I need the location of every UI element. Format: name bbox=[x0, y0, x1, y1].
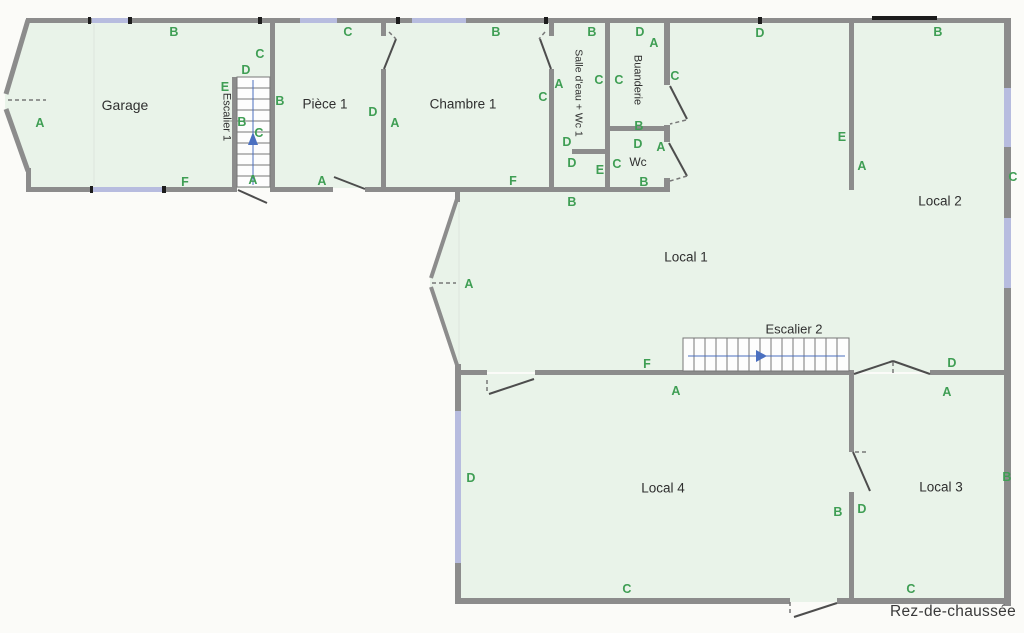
window-piece1-top bbox=[300, 18, 337, 23]
window-local2-right-2 bbox=[1004, 218, 1011, 288]
wall-label-13-B: B bbox=[491, 26, 500, 39]
wall-label-31-B: B bbox=[639, 176, 648, 189]
window-garage-top bbox=[92, 18, 128, 23]
wall-label-23-D: D bbox=[635, 26, 644, 39]
door-escalier1 bbox=[238, 190, 267, 203]
wall-label-15-C: C bbox=[538, 91, 547, 104]
floor-title: Rez-de-chaussée bbox=[890, 603, 1016, 621]
room-label-local-4: Local 4 bbox=[641, 481, 685, 495]
room-label-garage: Garage bbox=[102, 98, 149, 112]
wall-label-36-C: C bbox=[1008, 171, 1017, 184]
room-label-wc: Wc bbox=[629, 156, 646, 168]
door-exterior-bottom bbox=[794, 603, 837, 617]
wall-label-17-B: B bbox=[587, 26, 596, 39]
garage-door-bottom bbox=[92, 187, 164, 192]
wall-label-33-B: B bbox=[933, 26, 942, 39]
wall-label-19-C: C bbox=[594, 74, 603, 87]
wall-label-46-C: C bbox=[906, 583, 915, 596]
wall-label-40-A: A bbox=[671, 385, 680, 398]
floor-plan: BAFCDEBCABCDABACFBACDDEDACBCDACBDBEACBAF… bbox=[0, 0, 1024, 633]
wall-label-34-E: E bbox=[838, 131, 847, 144]
wall-label-22-E: E bbox=[596, 164, 605, 177]
room-label-escalier-2: Escalier 2 bbox=[765, 323, 822, 336]
room-label-local-2: Local 2 bbox=[918, 194, 962, 208]
wall-label-11-D: D bbox=[368, 106, 377, 119]
wall-label-38-A: A bbox=[464, 278, 473, 291]
wall-label-28-D: D bbox=[633, 138, 642, 151]
room-label-chambre-1: Chambre 1 bbox=[430, 97, 497, 111]
wall-label-48-C: C bbox=[622, 583, 631, 596]
room-label-buanderie: Buanderie bbox=[632, 55, 643, 105]
wall-label-44-B: B bbox=[833, 506, 842, 519]
window-local4-left bbox=[455, 411, 461, 563]
window-local2-right-1 bbox=[1004, 88, 1011, 147]
wall-label-26-B: B bbox=[634, 120, 643, 133]
wall-label-27-C: C bbox=[670, 70, 679, 83]
wall-label-42-A: A bbox=[942, 386, 951, 399]
wall-label-0-B: B bbox=[169, 26, 178, 39]
room-label-local-1: Local 1 bbox=[664, 250, 708, 264]
wall-label-16-F: F bbox=[509, 175, 517, 188]
wall-label-3-C: C bbox=[255, 48, 264, 61]
wall-label-21-D: D bbox=[567, 157, 576, 170]
wall-label-35-A: A bbox=[857, 160, 866, 173]
wall-label-6-B: B bbox=[237, 116, 246, 129]
wall-label-25-C: C bbox=[614, 74, 623, 87]
escalier-2-stairs bbox=[683, 338, 849, 371]
wall-label-14-A: A bbox=[390, 117, 399, 130]
wall-label-41-D: D bbox=[947, 357, 956, 370]
room-label-salle-d-eau-wc-1: Salle d'eau + Wc 1 bbox=[573, 49, 584, 137]
wall-label-7-C: C bbox=[254, 127, 263, 140]
wall-label-1-A: A bbox=[35, 117, 44, 130]
wall-label-24-A: A bbox=[649, 37, 658, 50]
room-label-escalier-1: Escalier 1 bbox=[221, 93, 232, 141]
wall-label-20-D: D bbox=[562, 136, 571, 149]
wall-label-2-F: F bbox=[181, 176, 189, 189]
wall-label-18-A: A bbox=[554, 78, 563, 91]
wall-label-47-D: D bbox=[466, 472, 475, 485]
window-chambre1-top bbox=[412, 18, 466, 23]
wall-label-12-A: A bbox=[317, 175, 326, 188]
wall-label-39-F: F bbox=[643, 358, 651, 371]
wall-label-45-D: D bbox=[857, 503, 866, 516]
floor-plan-canvas bbox=[0, 0, 1024, 633]
wall-label-32-D: D bbox=[755, 27, 764, 40]
room-label-local-3: Local 3 bbox=[919, 480, 963, 494]
floor-areas bbox=[5, 22, 1005, 602]
wall-label-30-C: C bbox=[612, 158, 621, 171]
wall-label-10-C: C bbox=[343, 26, 352, 39]
wall-label-37-B: B bbox=[567, 196, 576, 209]
wall-label-8-A: A bbox=[248, 174, 257, 187]
wall-label-5-E: E bbox=[221, 81, 230, 94]
wall-label-43-B: B bbox=[1002, 471, 1011, 484]
garage-bay-floor bbox=[5, 22, 28, 170]
wall-label-4-D: D bbox=[241, 64, 250, 77]
room-label-pi-ce-1: Pièce 1 bbox=[302, 97, 347, 111]
wall-label-29-A: A bbox=[656, 141, 665, 154]
wall-label-9-B: B bbox=[275, 95, 284, 108]
